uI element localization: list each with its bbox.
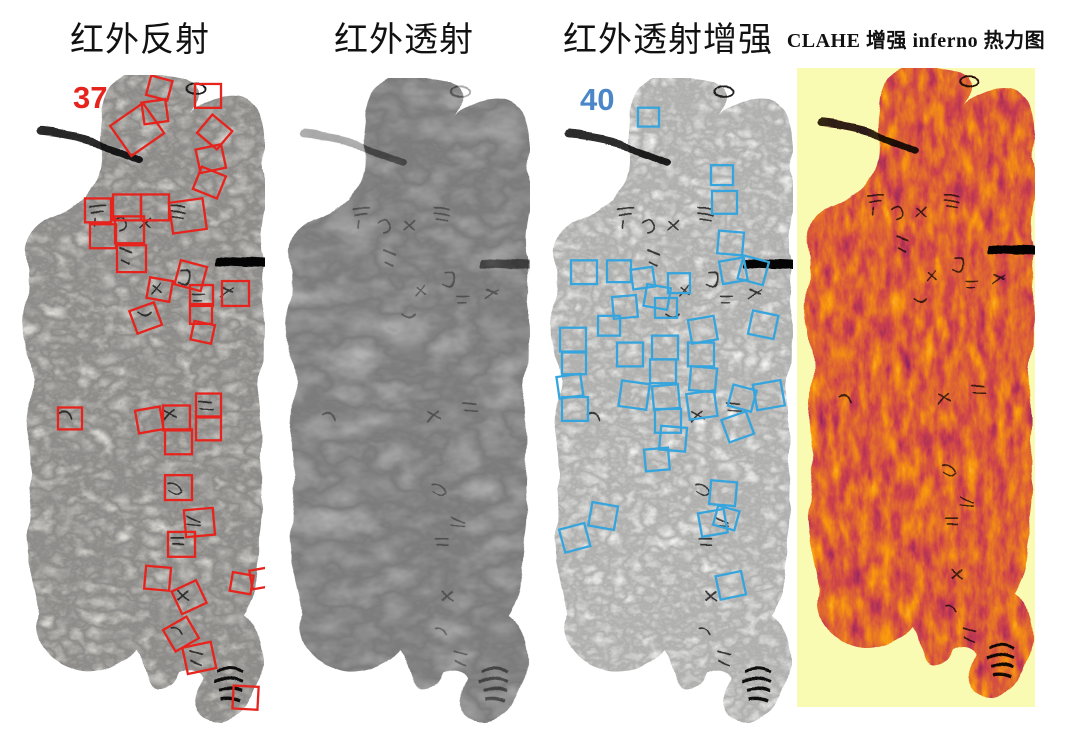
panel-title-clahe-inferno: CLAHE 增强 inferno 热力图 (786, 24, 1046, 53)
panel-title-ir-transmission-enhanced: 红外透射增强 (543, 12, 793, 61)
tablet-image-ir-transmission (278, 78, 530, 732)
panel-clahe-inferno (797, 68, 1035, 707)
figure-infrared-comparison: 红外反射 红外透射 红外透射增强 CLAHE 增强 inferno 热力图 37… (0, 0, 1080, 732)
panel-ir-reflection (15, 75, 265, 732)
panel-ir-transmission (278, 78, 530, 732)
panel-title-ir-reflection: 红外反射 (15, 12, 265, 61)
tablet-image-ir-reflection (15, 75, 265, 732)
tablet-image-clahe-inferno (797, 68, 1035, 707)
tablet-image-ir-transmission-enhanced (543, 78, 793, 732)
panel-ir-transmission-enhanced (543, 78, 793, 732)
panel-title-ir-transmission: 红外透射 (278, 12, 530, 61)
